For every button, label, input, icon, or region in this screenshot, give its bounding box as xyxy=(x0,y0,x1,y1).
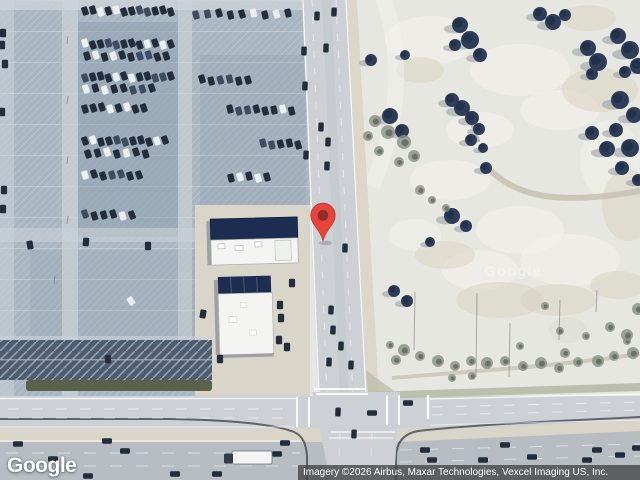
google-logo[interactable]: Google xyxy=(7,454,76,478)
building-north-dark-roof xyxy=(210,217,298,240)
attribution-text: Imagery ©2026 Airbus, Maxar Technologies… xyxy=(303,467,608,478)
map-viewport[interactable]: Google Google Imagery ©2026 Airbus, Maxa… xyxy=(0,0,640,480)
hedge-strip xyxy=(26,380,212,391)
location-marker-dot xyxy=(318,210,329,221)
location-marker[interactable] xyxy=(309,202,337,242)
building-south-white-roof xyxy=(218,293,274,355)
map-watermark: Google xyxy=(484,263,542,280)
location-marker-body[interactable] xyxy=(311,203,335,240)
attribution-bar: Imagery ©2026 Airbus, Maxar Technologies… xyxy=(298,465,640,480)
